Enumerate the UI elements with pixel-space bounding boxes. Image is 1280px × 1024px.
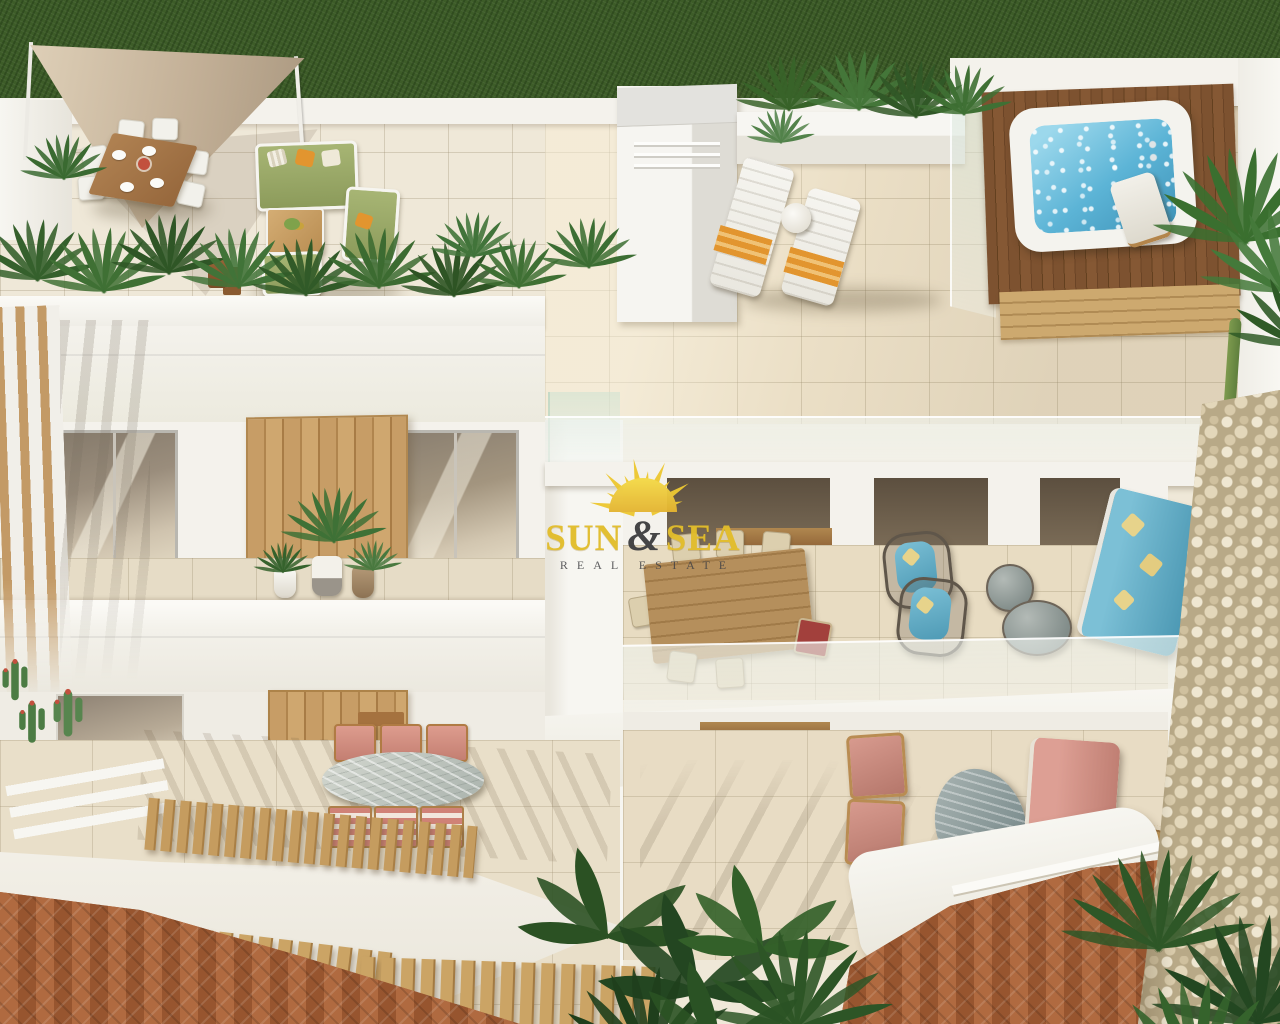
lounger-shadow [742, 288, 942, 312]
loveseat-pillow-white2 [321, 149, 341, 167]
brand-ampersand: & [627, 512, 660, 561]
jacuzzi-parapet-right [1238, 58, 1280, 403]
fruit-bowl [284, 218, 300, 230]
brand-text: SUN & SEA [533, 512, 753, 556]
plate [120, 182, 134, 192]
table-centerpiece [138, 158, 150, 170]
hanging-chair-cushion [907, 586, 952, 642]
brand-tagline: REAL ESTATE [533, 558, 753, 573]
ledge-pot-brown [352, 566, 374, 598]
roof-block-top [617, 84, 737, 127]
brand-word-sea: SEA [666, 517, 741, 560]
roof-planter-boxes [737, 112, 965, 164]
plate [150, 178, 164, 188]
pergola-shadow [60, 320, 150, 680]
villa-render: SUN & SEA REAL ESTATE [0, 0, 1280, 1024]
plate [112, 150, 126, 160]
round-side-table [781, 203, 811, 233]
plate [142, 146, 156, 156]
roof-block-louver [634, 142, 720, 147]
roof-block-louver [634, 153, 720, 158]
ledge-pot-large [312, 556, 342, 596]
sun-logo-icon [575, 450, 711, 514]
interior-column [830, 478, 874, 548]
jacuzzi-jets [1147, 138, 1159, 165]
lantern-table [208, 258, 228, 288]
roof-parapet-left-wall [0, 100, 72, 240]
pink-armchair [846, 732, 908, 800]
window-right [395, 430, 519, 566]
watermark: SUN & SEA REAL ESTATE [533, 450, 753, 580]
green-ottoman [261, 251, 322, 297]
loveseat-pillow-orange [295, 148, 316, 167]
roof-dining-chair [152, 118, 179, 141]
wood-slider-panel [246, 415, 408, 580]
roof-block-louver [634, 164, 720, 169]
oval-marble-table [322, 752, 484, 808]
brand-word-sun: SUN [545, 517, 622, 560]
ledge-pot-small [274, 568, 296, 598]
coffee-table-wood [266, 208, 324, 254]
deck-steps [999, 284, 1241, 340]
interior-column [988, 478, 1040, 548]
